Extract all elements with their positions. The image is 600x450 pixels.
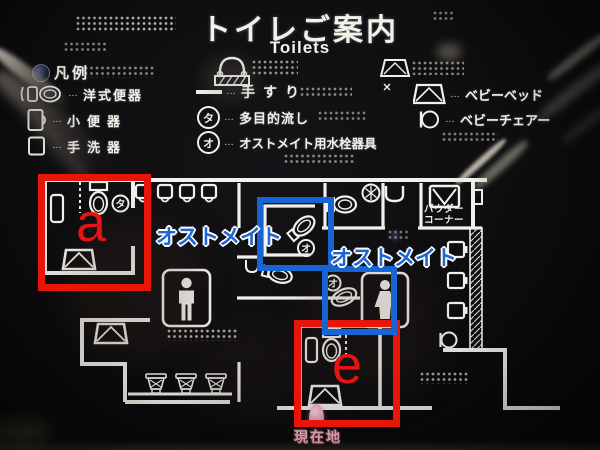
blue-box-ostomate-2 <box>322 266 397 335</box>
toilet-guide-sign-photo: トイレご案内 Toilets 凡例 … 洋式便 <box>0 0 600 450</box>
ostomate-label-2: オストメイト <box>331 242 457 272</box>
annotation-overlays: a e オストメイト オストメイト <box>0 0 600 450</box>
red-letter-e: e <box>332 338 362 392</box>
ostomate-label-1: オストメイト <box>156 221 282 251</box>
red-letter-a: a <box>76 196 106 250</box>
